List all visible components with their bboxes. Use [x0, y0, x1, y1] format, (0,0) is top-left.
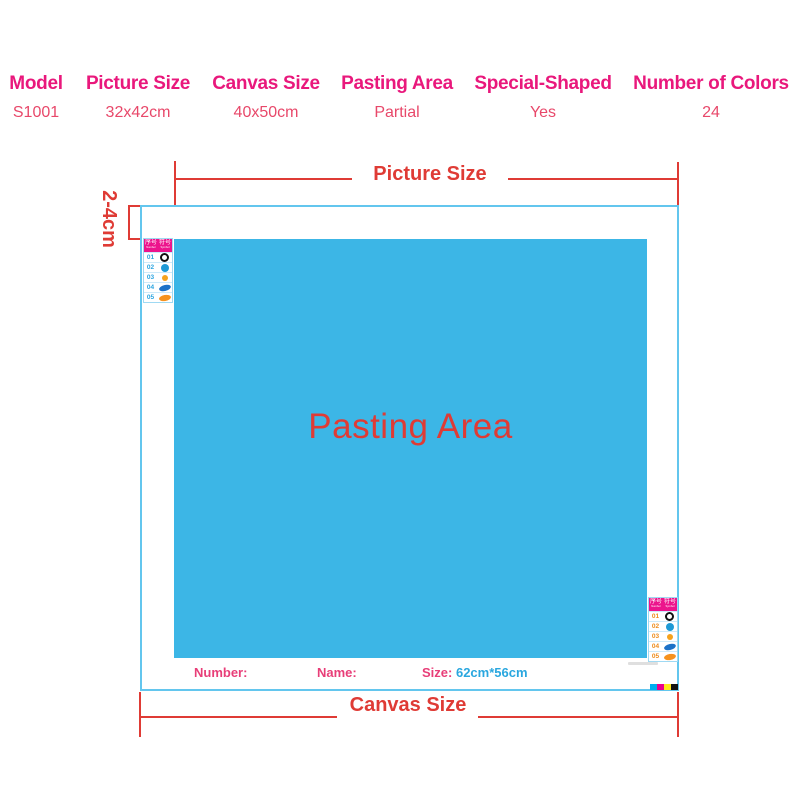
legend-row: 02: [144, 262, 172, 272]
color-legend-sticker: 序号Number符号Symbol 01 02 03 04 05: [143, 238, 173, 303]
legend-header: 序号Number符号Symbol: [144, 239, 172, 252]
legend-header-cell: 符号Symbol: [158, 239, 172, 252]
number-label: Number:: [194, 665, 247, 680]
legend-symbol-icon: [662, 623, 677, 631]
pasting-area: Pasting Area: [174, 239, 647, 658]
legend-number: 03: [649, 632, 662, 642]
legend-number: 05: [649, 652, 662, 662]
legend-row: 03: [144, 272, 172, 282]
legend-number: 05: [144, 293, 157, 303]
spec-header: Special-Shaped: [474, 73, 611, 95]
spec-header: Picture Size: [86, 73, 190, 95]
product-spec-sheet: Model S1001 Picture Size 32x42cm Canvas …: [0, 0, 800, 800]
print-mark-square: [664, 684, 671, 690]
legend-number: 02: [144, 263, 157, 273]
canvas-size-dimension-line: [140, 716, 337, 718]
size-label: Size: 62cm*56cm: [422, 665, 528, 680]
print-mark-square: [657, 684, 664, 690]
color-legend-sticker: 序号Number符号Symbol 01 02 03 04 05: [648, 597, 678, 662]
spec-value: Partial: [374, 104, 419, 122]
fine-print-text: [628, 662, 658, 665]
legend-symbol-icon: [157, 275, 172, 281]
legend-row: 05: [649, 651, 677, 661]
legend-symbol-icon: [157, 285, 172, 291]
legend-header-cell: 符号Symbol: [663, 598, 677, 611]
pasting-area-label: Pasting Area: [174, 407, 647, 447]
legend-symbol-icon: [157, 295, 172, 301]
spec-header: Pasting Area: [341, 73, 453, 95]
canvas-size-tick-right: [677, 692, 679, 737]
legend-row: 03: [649, 631, 677, 641]
legend-number: 04: [649, 642, 662, 652]
spec-value: Yes: [530, 104, 556, 122]
spec-value: 24: [702, 104, 720, 122]
legend-row: 04: [649, 641, 677, 651]
canvas-size-dimension-line: [478, 716, 679, 718]
legend-number: 03: [144, 273, 157, 283]
name-label: Name:: [317, 665, 357, 680]
picture-size-label: Picture Size: [373, 163, 486, 186]
spec-value: S1001: [13, 104, 59, 122]
legend-symbol-icon: [662, 612, 677, 621]
margin-size-label: 2-4cm: [98, 189, 120, 249]
spec-header: Number of Colors: [633, 73, 789, 95]
size-value: 62cm*56cm: [456, 665, 528, 680]
spec-header: Canvas Size: [212, 73, 320, 95]
legend-header: 序号Number符号Symbol: [649, 598, 677, 611]
canvas-size-tick-left: [139, 692, 141, 737]
legend-rows: 01 02 03 04 05: [649, 611, 677, 661]
legend-row: 02: [649, 621, 677, 631]
margin-bracket-line: [128, 205, 130, 240]
spec-value: 40x50cm: [234, 104, 299, 122]
print-mark-square: [650, 684, 657, 690]
legend-header-cell: 序号Number: [649, 598, 663, 611]
legend-number: 02: [649, 622, 662, 632]
legend-number: 01: [649, 612, 662, 622]
legend-symbol-icon: [157, 264, 172, 272]
legend-number: 04: [144, 283, 157, 293]
spec-header: Model: [9, 73, 62, 95]
cmyk-print-marks: [650, 684, 678, 690]
legend-row: 01: [144, 252, 172, 262]
legend-symbol-icon: [662, 634, 677, 640]
legend-row: 05: [144, 292, 172, 302]
legend-rows: 01 02 03 04 05: [144, 252, 172, 302]
legend-header-cell: 序号Number: [144, 239, 158, 252]
size-caption: Size:: [422, 665, 452, 680]
legend-row: 04: [144, 282, 172, 292]
legend-row: 01: [649, 611, 677, 621]
legend-number: 01: [144, 253, 157, 263]
legend-symbol-icon: [662, 654, 677, 660]
print-mark-square: [671, 684, 678, 690]
legend-symbol-icon: [157, 253, 172, 262]
picture-size-dimension-line: [175, 178, 352, 180]
canvas-size-label: Canvas Size: [350, 694, 467, 717]
picture-size-dimension-line: [508, 178, 679, 180]
spec-value: 32x42cm: [106, 104, 171, 122]
legend-symbol-icon: [662, 644, 677, 650]
